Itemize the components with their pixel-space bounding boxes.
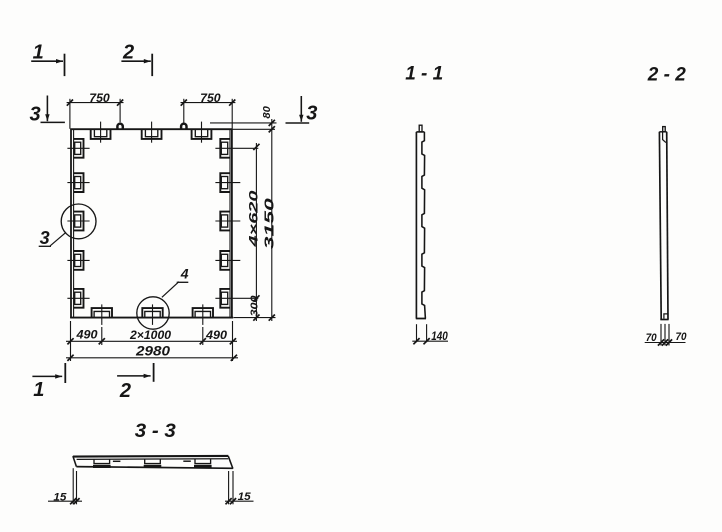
svg-text:3: 3	[306, 102, 317, 124]
svg-text:1 - 1: 1 - 1	[405, 64, 443, 85]
svg-text:1: 1	[33, 42, 44, 64]
svg-text:750: 750	[200, 93, 221, 105]
svg-text:80: 80	[261, 106, 273, 119]
svg-text:3150: 3150	[263, 198, 277, 249]
svg-text:300: 300	[249, 295, 260, 317]
svg-text:70: 70	[646, 332, 658, 344]
svg-text:2: 2	[119, 380, 131, 402]
svg-text:2 - 2: 2 - 2	[647, 65, 686, 86]
svg-text:3: 3	[29, 104, 40, 126]
svg-text:140: 140	[431, 331, 448, 343]
svg-text:1: 1	[33, 379, 44, 401]
svg-text:3 - 3: 3 - 3	[135, 421, 176, 442]
svg-text:4×620: 4×620	[249, 189, 261, 248]
svg-text:15: 15	[238, 491, 252, 503]
svg-text:490: 490	[75, 329, 98, 341]
svg-text:70: 70	[676, 331, 688, 343]
svg-text:750: 750	[89, 93, 110, 105]
svg-text:4: 4	[180, 265, 189, 281]
svg-text:3: 3	[40, 228, 50, 248]
svg-text:490: 490	[205, 330, 228, 342]
svg-text:2×1000: 2×1000	[129, 330, 172, 342]
svg-text:2: 2	[122, 42, 134, 64]
svg-text:2980: 2980	[135, 344, 171, 359]
svg-text:15: 15	[53, 491, 67, 503]
